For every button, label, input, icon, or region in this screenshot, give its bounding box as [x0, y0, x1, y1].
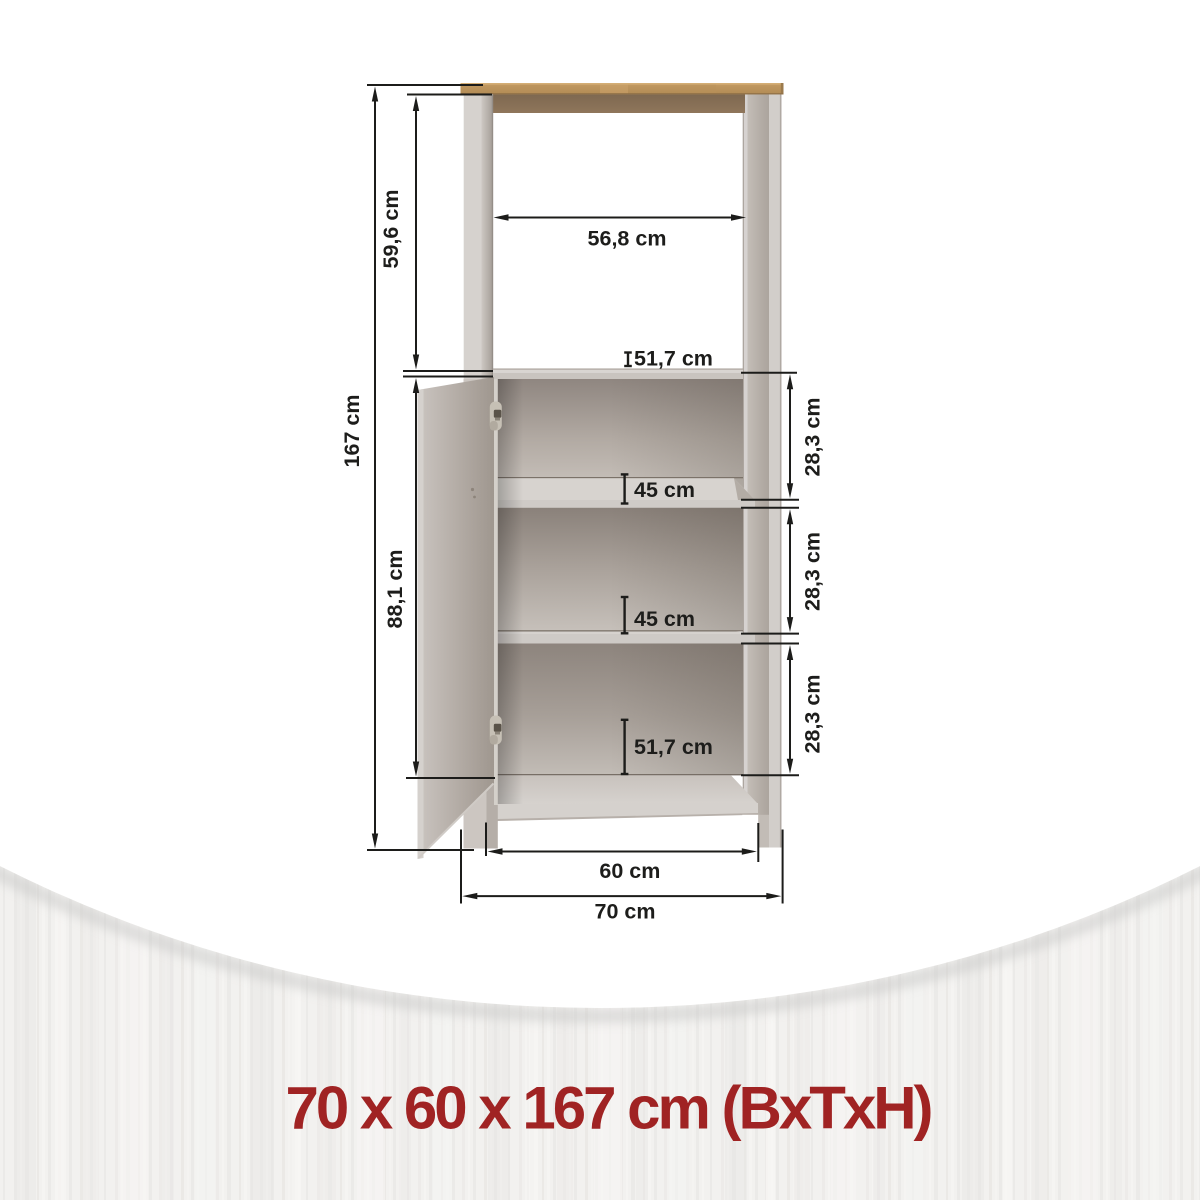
svg-text:59,6 cm: 59,6 cm [379, 190, 403, 269]
svg-text:28,3 cm: 28,3 cm [801, 532, 825, 611]
svg-text:51,7 cm: 51,7 cm [634, 347, 713, 371]
svg-text:88,1 cm: 88,1 cm [383, 550, 407, 629]
svg-text:60 cm: 60 cm [599, 859, 660, 883]
svg-text:70 cm: 70 cm [595, 900, 656, 924]
svg-text:28,3 cm: 28,3 cm [801, 675, 825, 754]
svg-text:70 x 60 x 167 cm (BxTxH): 70 x 60 x 167 cm (BxTxH) [285, 1075, 930, 1142]
svg-text:28,3 cm: 28,3 cm [801, 398, 825, 477]
svg-text:167 cm: 167 cm [340, 395, 364, 468]
svg-text:45 cm: 45 cm [634, 478, 695, 502]
svg-text:51,7 cm: 51,7 cm [634, 735, 713, 759]
svg-text:56,8 cm: 56,8 cm [588, 227, 667, 251]
svg-text:45 cm: 45 cm [634, 607, 695, 631]
